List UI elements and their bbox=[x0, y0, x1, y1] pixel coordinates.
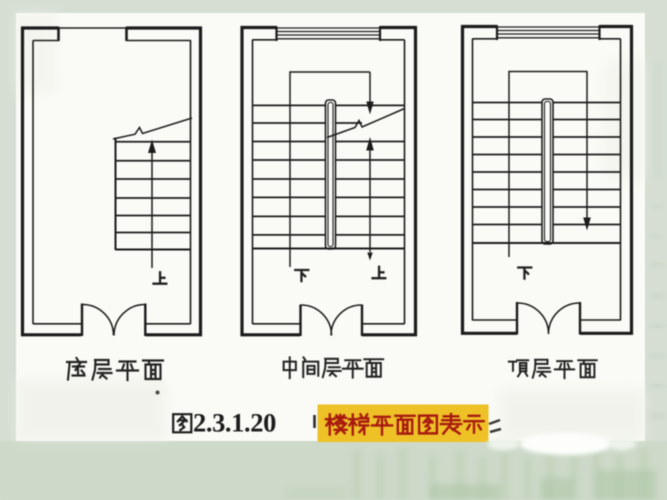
svg-text:2.3.1.20: 2.3.1.20 bbox=[193, 408, 276, 438]
